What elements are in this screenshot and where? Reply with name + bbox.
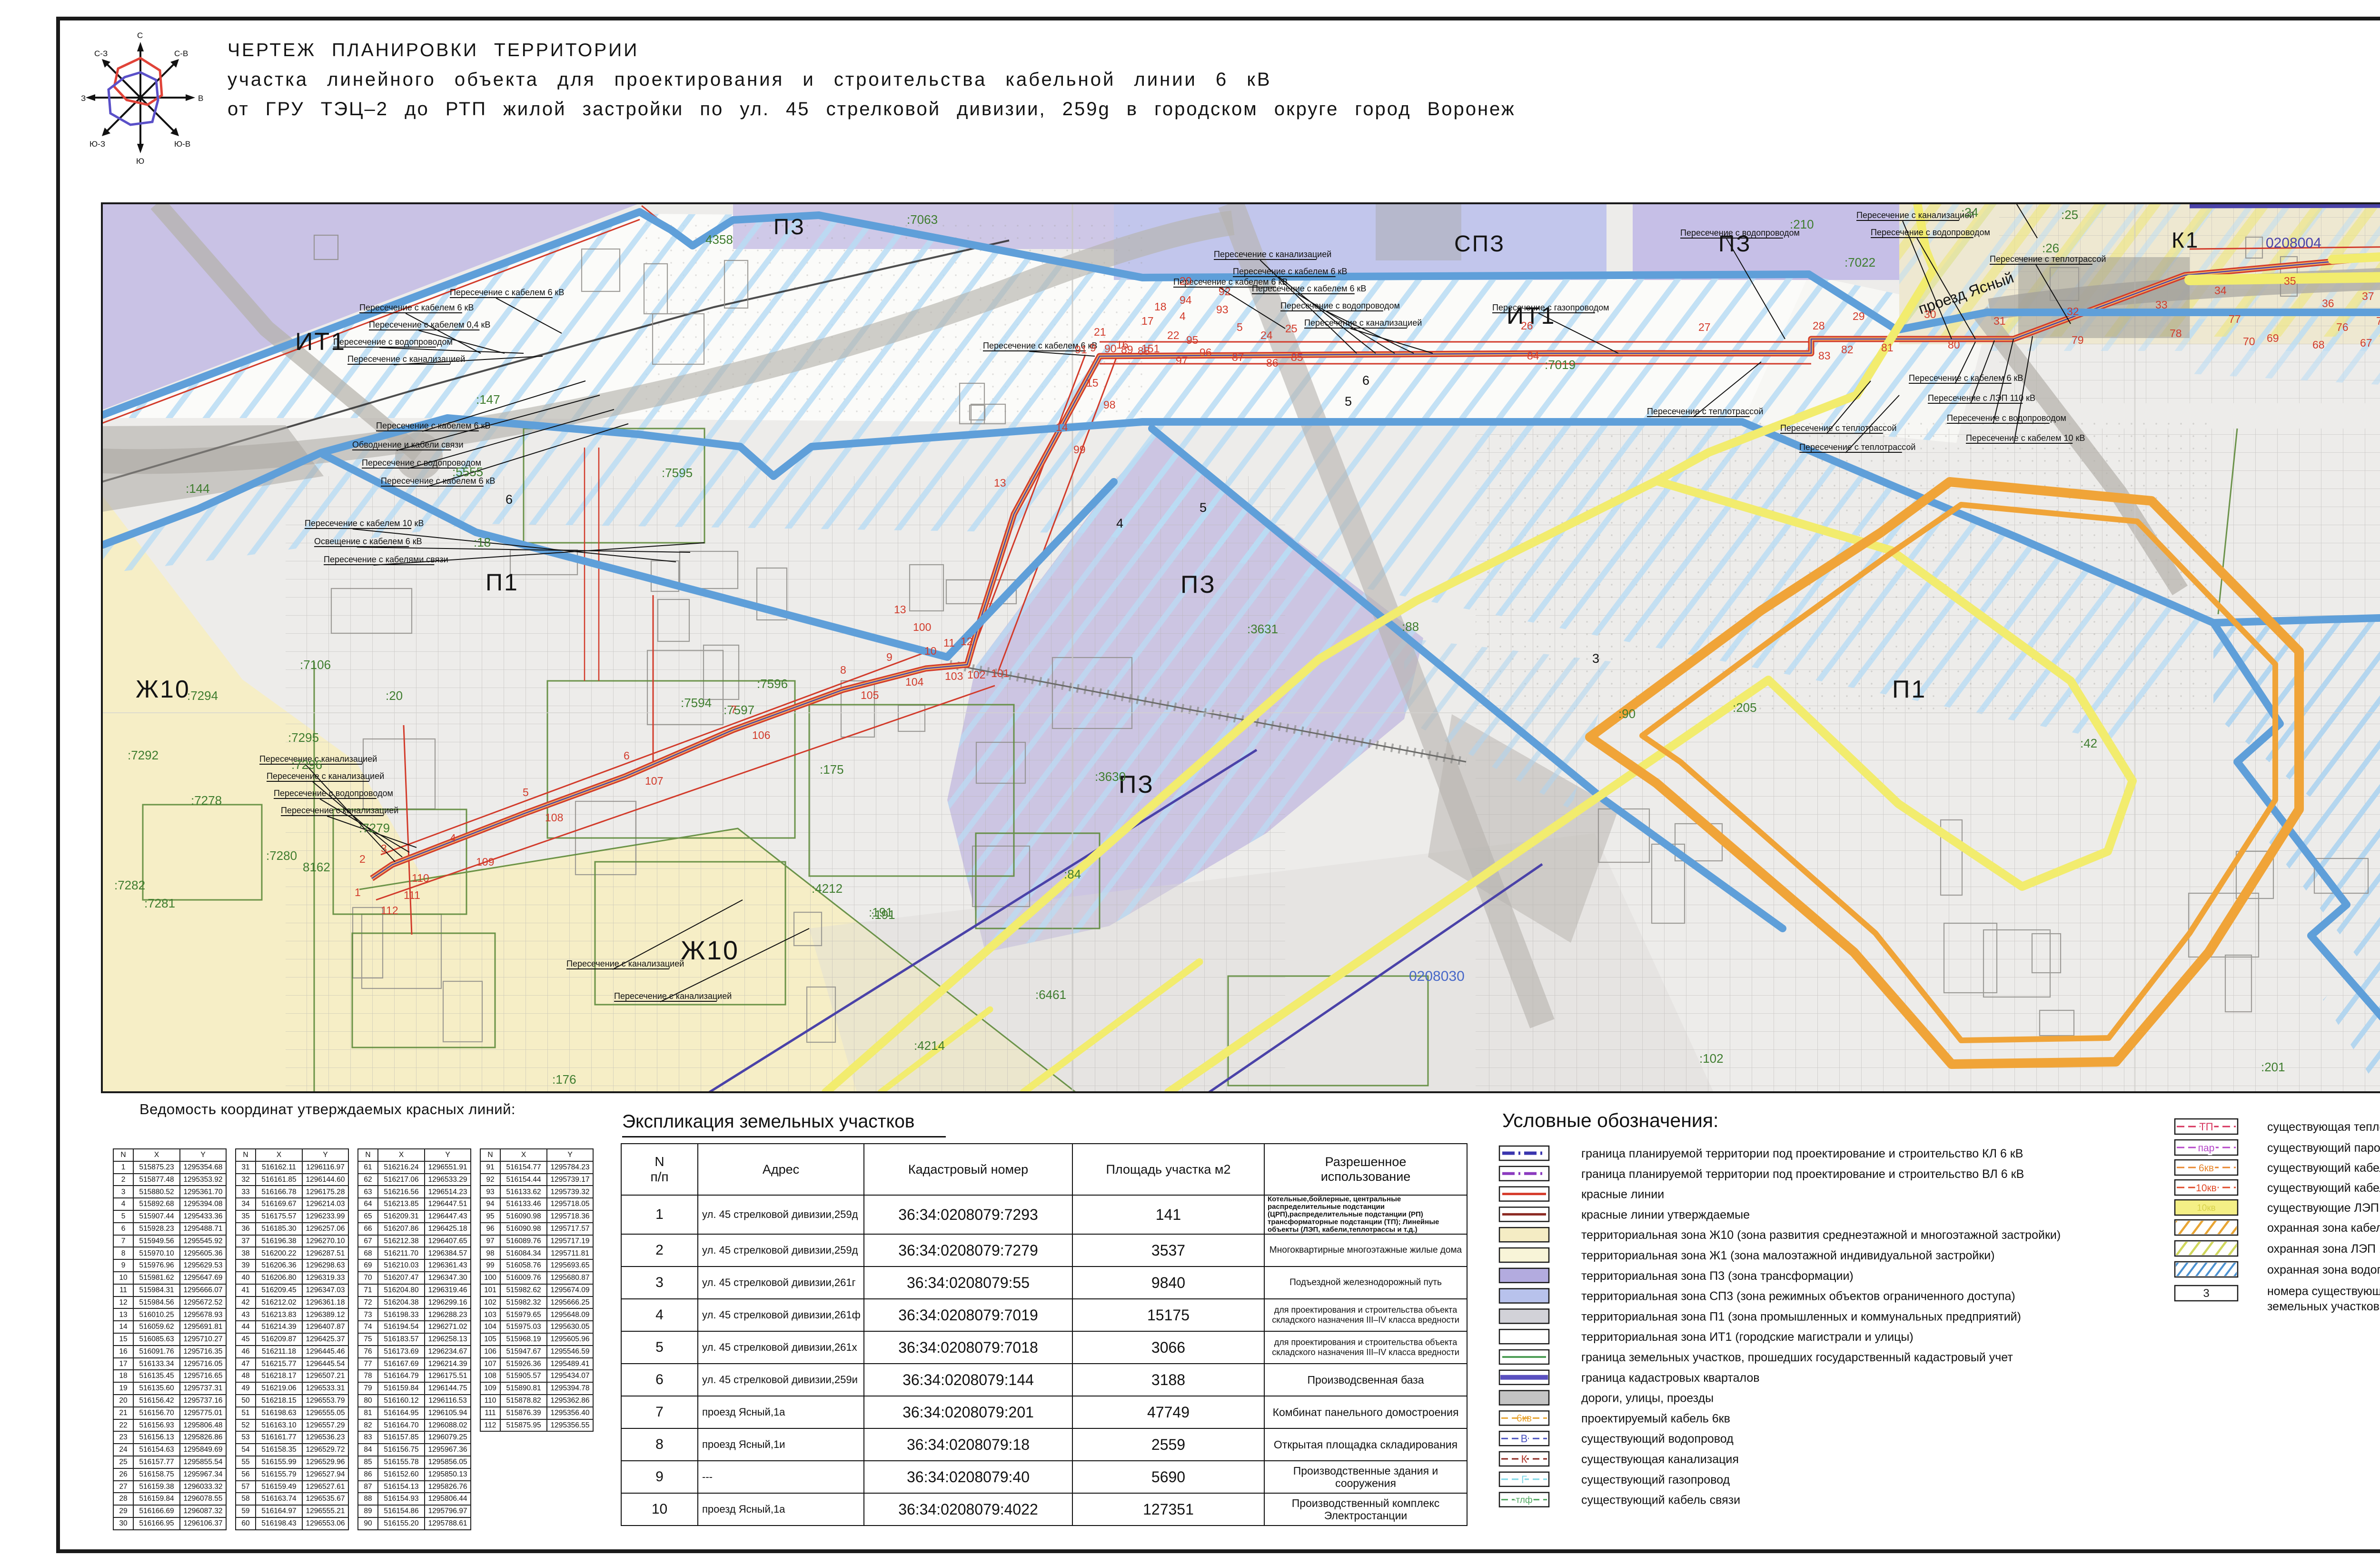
svg-text:существующая канализация: существующая канализация (1581, 1453, 1739, 1466)
svg-text:существующий кабель 6 кв: существующий кабель 6 кв (2267, 1161, 2380, 1175)
svg-text:территориальная зона П1 (зона: территориальная зона П1 (зона промышленн… (1581, 1310, 2021, 1323)
svg-text:красные линии: красные линии (1581, 1188, 1664, 1201)
svg-text:В: В (1521, 1433, 1528, 1445)
svg-text:К: К (1521, 1453, 1527, 1465)
svg-text:территориальная зона П3 (зона: территориальная зона П3 (зона трансформа… (1581, 1269, 1854, 1283)
svg-text:граница кадастровых кварталов: граница кадастровых кварталов (1581, 1371, 1760, 1385)
svg-text:охранная зона кабеля 6 кв: охранная зона кабеля 6 кв (2267, 1221, 2380, 1235)
svg-text:ТП: ТП (2199, 1121, 2213, 1133)
svg-text:существующий водопровод: существующий водопровод (1581, 1432, 1734, 1446)
svg-text:территориальная зона Ж1 (зона: территориальная зона Ж1 (зона малоэтажно… (1581, 1249, 1995, 1262)
svg-text:территориальная зона Ж10 (зон: территориальная зона Ж10 (зона развития … (1581, 1228, 2061, 1242)
svg-text:красные линии утверждаемые: красные линии утверждаемые (1581, 1208, 1750, 1221)
svg-text:граница земельных участков, п: граница земельных участков, прошедших го… (1581, 1351, 2013, 1364)
svg-text:проектируемый кабель 6кв: проектируемый кабель 6кв (1581, 1412, 1730, 1425)
svg-text:6кв: 6кв (2199, 1163, 2214, 1174)
svg-text:дороги, улицы, проезды: дороги, улицы, проезды (1581, 1392, 1714, 1405)
svg-text:существующий газопровод: существующий газопровод (1581, 1473, 1730, 1486)
svg-text:существующие ЛЭП 110 кв: существующие ЛЭП 110 кв (2267, 1201, 2380, 1215)
svg-text:тлф: тлф (1516, 1496, 1532, 1506)
svg-text:территориальная зона ИТ1 (гор: территориальная зона ИТ1 (городские маги… (1581, 1330, 1914, 1344)
svg-text:существующий кабель связи: существующий кабель связи (1581, 1494, 1740, 1507)
svg-text:3: 3 (2203, 1287, 2209, 1300)
svg-text:охранная зона ЛЭП 110 кв: охранная зона ЛЭП 110 кв (2267, 1242, 2380, 1256)
svg-text:существующий кабель 10 кв: существующий кабель 10 кв (2267, 1181, 2380, 1195)
svg-text:земельных участков: земельных участков (2267, 1300, 2380, 1313)
svg-text:номера существующих: номера существующих (2267, 1285, 2380, 1298)
svg-text:граница планируемой территории: граница планируемой территории под проек… (1581, 1147, 2023, 1160)
svg-text:Г: Г (1521, 1474, 1527, 1486)
svg-text:существующий паропровод: существующий паропровод (2267, 1141, 2380, 1155)
svg-text:охранная зона водопровода: охранная зона водопровода (2267, 1263, 2380, 1277)
svg-text:10кв: 10кв (2196, 1183, 2217, 1194)
svg-text:граница планируемой территории: граница планируемой территории под проек… (1581, 1167, 2024, 1181)
svg-text:пар: пар (2198, 1143, 2215, 1154)
svg-text:территориальная зона СП3 (зон: территориальная зона СП3 (зона режимных … (1581, 1290, 2015, 1303)
svg-text:существующая теплотрасса: существующая теплотрасса (2267, 1120, 2380, 1134)
svg-text:10кв: 10кв (2197, 1203, 2216, 1213)
svg-text:6кв: 6кв (1517, 1413, 1532, 1424)
